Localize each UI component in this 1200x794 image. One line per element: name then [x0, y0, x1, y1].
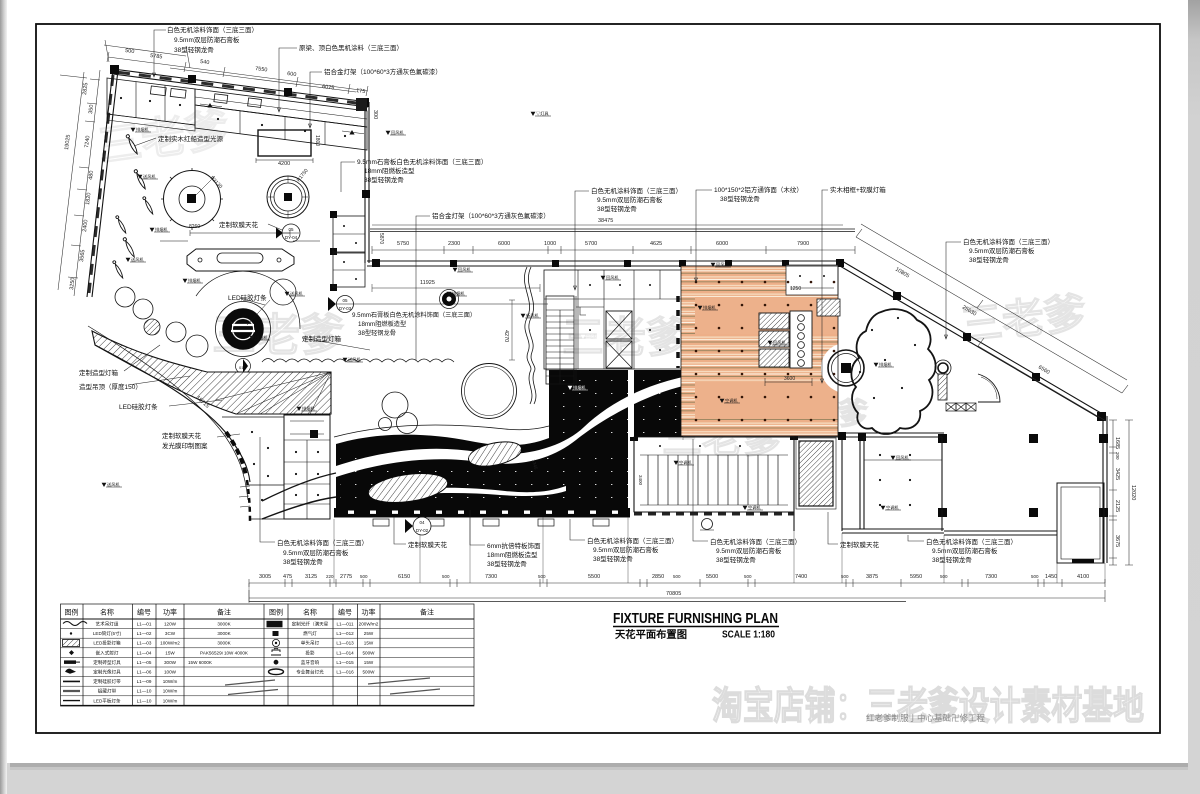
svg-text:排烟机: 排烟机	[255, 334, 268, 341]
svg-text:名称: 名称	[100, 608, 114, 617]
svg-text:嵌入式射灯: 嵌入式射灯	[96, 649, 119, 656]
svg-text:编号: 编号	[137, 608, 151, 617]
svg-text:220: 220	[326, 574, 334, 579]
svg-text:L1—05: L1—05	[137, 660, 152, 665]
svg-text:5500: 5500	[706, 574, 718, 580]
svg-text:38型轻钢龙骨: 38型轻钢龙骨	[969, 255, 1009, 264]
svg-text:LED硅胶灯条: LED硅胶灯条	[228, 293, 267, 302]
svg-text:1450: 1450	[1045, 574, 1057, 580]
svg-text:38型轻钢龙骨: 38型轻钢龙骨	[358, 329, 396, 337]
svg-text:定制光像灯具: 定制光像灯具	[93, 669, 121, 676]
svg-text:定制软膜天花: 定制软膜天花	[408, 540, 448, 549]
svg-text:3875: 3875	[866, 574, 878, 580]
svg-text:8260: 8260	[189, 224, 200, 230]
svg-text:4625: 4625	[650, 241, 662, 247]
svg-text:200: 200	[1115, 452, 1120, 460]
svg-text:15W: 15W	[364, 660, 374, 665]
svg-text:9.5mm双层防潮石膏板: 9.5mm双层防潮石膏板	[716, 546, 782, 555]
svg-text:500: 500	[125, 48, 135, 55]
svg-text:04: 04	[419, 520, 425, 525]
svg-text:2300: 2300	[448, 241, 460, 247]
svg-text:送风机: 送风机	[143, 173, 156, 180]
svg-text:38型轻钢龙骨: 38型轻钢龙骨	[932, 555, 972, 564]
svg-text:12020: 12020	[1130, 485, 1136, 500]
svg-text:7300: 7300	[485, 574, 497, 580]
svg-text:3005: 3005	[259, 574, 271, 580]
svg-text:500: 500	[360, 574, 368, 579]
svg-text:10W/m: 10W/m	[163, 689, 178, 694]
svg-text:500: 500	[1031, 574, 1039, 579]
svg-text:4100: 4100	[1077, 574, 1089, 580]
svg-text:回风机: 回风机	[716, 261, 729, 268]
svg-text:1800: 1800	[314, 135, 320, 146]
svg-text:4200: 4200	[278, 161, 290, 167]
svg-text:空调机: 空调机	[886, 504, 899, 511]
svg-text:L1—10: L1—10	[137, 698, 152, 703]
svg-text:L1—016: L1—016	[336, 670, 354, 675]
svg-text:LED硅胶灯条: LED硅胶灯条	[119, 402, 158, 411]
svg-text:3CW: 3CW	[165, 631, 176, 636]
svg-text:天花平面布置图: 天花平面布置图	[615, 628, 687, 641]
svg-text:15W: 15W	[165, 650, 175, 655]
svg-text:排烟机: 排烟机	[452, 290, 465, 297]
svg-text:回风机: 回风机	[586, 333, 599, 340]
svg-text:38型轻钢龙骨: 38型轻钢龙骨	[283, 557, 323, 566]
svg-text:500: 500	[940, 574, 948, 579]
svg-text:定制软膜天花: 定制软膜天花	[162, 431, 202, 440]
svg-text:7900: 7900	[797, 241, 809, 247]
svg-text:L1—013: L1—013	[336, 641, 354, 646]
svg-text:10W/m: 10W/m	[163, 679, 178, 684]
svg-text:排烟机: 排烟机	[703, 304, 716, 311]
svg-text:11925: 11925	[420, 280, 435, 286]
svg-text:定制实木红船造型光源: 定制实木红船造型光源	[158, 134, 224, 143]
svg-text:L1—03: L1—03	[137, 641, 152, 646]
svg-text:18mm阻燃板造型: 18mm阻燃板造型	[364, 166, 415, 175]
svg-text:白色无机涂料饰面（三底三面）: 白色无机涂料饰面（三底三面）	[277, 538, 368, 547]
svg-text:1250: 1250	[790, 286, 801, 292]
svg-text:DY-03: DY-03	[339, 306, 352, 311]
svg-text:LED筒灯(5寸): LED筒灯(5寸)	[93, 630, 122, 637]
svg-text:定制软膜天花: 定制软膜天花	[840, 540, 880, 549]
svg-text:L1—02: L1—02	[137, 631, 152, 636]
svg-text:送风机: 送风机	[348, 356, 361, 363]
svg-text:排烟机: 排烟机	[879, 361, 892, 368]
svg-text:白色无机涂料饰面（三底三面）: 白色无机涂料饰面（三底三面）	[926, 537, 1017, 546]
svg-text:38型轻钢龙骨: 38型轻钢龙骨	[487, 559, 527, 568]
svg-text:18mm阻燃板造型: 18mm阻燃板造型	[358, 320, 406, 328]
svg-text:5750: 5750	[397, 241, 409, 247]
svg-text:L1—10: L1—10	[137, 689, 152, 694]
svg-text:送风机: 送风机	[131, 256, 144, 263]
svg-text:L1—09: L1—09	[137, 679, 152, 684]
svg-text:38475: 38475	[598, 218, 613, 224]
svg-text:白色无机涂料饰面（三底三面）: 白色无机涂料饰面（三底三面）	[591, 186, 682, 195]
svg-text:备注: 备注	[420, 608, 434, 617]
svg-text:9.5mm双层防潮石膏板: 9.5mm双层防潮石膏板	[174, 35, 240, 44]
svg-text:38型轻钢龙骨: 38型轻钢龙骨	[716, 555, 756, 564]
svg-text:图例: 图例	[65, 608, 79, 617]
svg-text:白色无机涂料饰面（三底三面）: 白色无机涂料饰面（三底三面）	[167, 25, 258, 34]
svg-text:DY-04: DY-04	[285, 235, 298, 240]
svg-text:定制造型灯箱: 定制造型灯箱	[79, 368, 119, 377]
svg-text:120W: 120W	[164, 622, 177, 627]
svg-text:38型轻钢龙骨: 38型轻钢龙骨	[720, 194, 760, 203]
svg-text:38型轻钢龙骨: 38型轻钢龙骨	[364, 175, 404, 184]
svg-text:2850: 2850	[652, 574, 664, 580]
svg-text:600: 600	[287, 71, 297, 78]
svg-text:175: 175	[356, 88, 366, 95]
svg-text:15W 6000K: 15W 6000K	[188, 660, 213, 665]
svg-text:备注: 备注	[217, 608, 231, 617]
svg-text:10W/m: 10W/m	[163, 698, 178, 703]
svg-text:500: 500	[841, 574, 849, 579]
svg-text:单头吊灯: 单头吊灯	[301, 640, 320, 647]
svg-text:3675: 3675	[1114, 535, 1120, 547]
svg-text:1685: 1685	[1114, 437, 1120, 449]
svg-text:9.5mm双层防潮石膏板: 9.5mm双层防潮石膏板	[969, 246, 1035, 255]
svg-text:送风机: 送风机	[107, 481, 120, 488]
svg-text:白色无机涂料饰面（三底三面）: 白色无机涂料饰面（三底三面）	[587, 536, 678, 545]
svg-text:定制光纤（满天星: 定制光纤（满天星	[292, 621, 329, 628]
svg-text:500: 500	[744, 574, 752, 579]
svg-text:3400: 3400	[638, 475, 643, 486]
svg-text:540: 540	[200, 59, 210, 66]
svg-text:▽灯具: ▽灯具	[536, 110, 549, 117]
svg-text:6000: 6000	[498, 241, 510, 247]
svg-text:3425: 3425	[1114, 468, 1120, 480]
svg-text:造型吊顶（厚度150）: 造型吊顶（厚度150）	[79, 382, 142, 391]
svg-text:9.5mm双层防潮石膏板: 9.5mm双层防潮石膏板	[283, 548, 349, 557]
svg-text:空调机: 空调机	[725, 397, 738, 404]
svg-text:专业舞台灯光: 专业舞台灯光	[296, 669, 324, 676]
svg-text:三老爹: 三老爹	[562, 314, 688, 361]
svg-text:FIXTURE FURNISHING PLAN: FIXTURE FURNISHING PLAN	[613, 610, 778, 627]
svg-text:艺术吊灯组: 艺术吊灯组	[96, 621, 119, 628]
svg-text:5870: 5870	[378, 233, 384, 244]
svg-text:名称: 名称	[303, 608, 317, 617]
svg-text:L1—04: L1—04	[137, 650, 152, 655]
svg-text:PAK56529i 10W 4000K: PAK56529i 10W 4000K	[200, 650, 249, 655]
svg-text:9.5mm双层防潮石膏板: 9.5mm双层防潮石膏板	[932, 546, 998, 555]
svg-text:编号: 编号	[338, 608, 352, 617]
svg-text:6000: 6000	[716, 241, 728, 247]
svg-text:100W: 100W	[164, 670, 177, 675]
svg-text:500: 500	[442, 574, 450, 579]
svg-text:15W: 15W	[364, 641, 374, 646]
svg-text:排烟机: 排烟机	[573, 384, 586, 391]
svg-text:定制造型灯箱: 定制造型灯箱	[302, 334, 342, 343]
svg-text:DY-02: DY-02	[416, 528, 429, 533]
svg-text:新风机: 新风机	[526, 312, 539, 319]
svg-text:发光膜印制图案: 发光膜印制图案	[162, 441, 208, 450]
svg-text:回风机: 回风机	[391, 129, 404, 136]
svg-text:L1—015: L1—015	[336, 660, 354, 665]
svg-text:25W: 25W	[364, 631, 374, 636]
svg-text:05: 05	[342, 298, 348, 303]
svg-text:475: 475	[283, 574, 292, 580]
svg-text:6mm抗倍特板饰面: 6mm抗倍特板饰面	[487, 541, 541, 550]
svg-text:白色无机涂料饰面（三底三面）: 白色无机涂料饰面（三底三面）	[963, 237, 1054, 246]
svg-text:9.5mm双层防潮石膏板: 9.5mm双层防潮石膏板	[593, 545, 659, 554]
svg-text:7400: 7400	[795, 574, 807, 580]
svg-text:L1—06: L1—06	[137, 670, 152, 675]
svg-text:38型轻钢龙骨: 38型轻钢龙骨	[597, 204, 637, 213]
svg-text:500W: 500W	[362, 670, 375, 675]
svg-text:回风机: 回风机	[773, 339, 786, 346]
svg-text:铝合金灯架（100*60*3方通灰色氟碳漆）: 铝合金灯架（100*60*3方通灰色氟碳漆）	[432, 211, 550, 220]
svg-text:1000: 1000	[544, 241, 556, 247]
svg-text:3000K: 3000K	[217, 622, 231, 627]
svg-text:投影: 投影	[305, 649, 315, 656]
svg-text:原梁、顶白色黑机涂料（三底三面）: 原梁、顶白色黑机涂料（三底三面）	[299, 43, 403, 52]
svg-text:白色无机涂料饰面（三底三面）: 白色无机涂料饰面（三底三面）	[710, 537, 801, 546]
svg-text:排烟机: 排烟机	[136, 126, 149, 133]
svg-text:蓝牙音响: 蓝牙音响	[301, 659, 320, 666]
svg-text:回风机: 回风机	[606, 274, 619, 281]
svg-text:铝合金灯架（100*60*3方通灰色氟碳漆）: 铝合金灯架（100*60*3方通灰色氟碳漆）	[324, 67, 442, 76]
svg-text:排烟机: 排烟机	[155, 226, 168, 233]
svg-text:3125: 3125	[305, 574, 317, 580]
svg-text:排烟机: 排烟机	[302, 405, 315, 412]
svg-text:空调机: 空调机	[679, 459, 692, 466]
svg-text:100*150*2铝方通饰面（木纹）: 100*150*2铝方通饰面（木纹）	[714, 185, 803, 194]
svg-text:4270: 4270	[503, 330, 509, 342]
svg-text:01: 01	[239, 365, 244, 370]
svg-text:500: 500	[538, 574, 546, 579]
svg-text:空调机: 空调机	[748, 504, 761, 511]
svg-text:L1—012: L1—012	[336, 631, 354, 636]
svg-text:LED平板灯条: LED平板灯条	[93, 697, 121, 704]
svg-text:3000K: 3000K	[217, 631, 231, 636]
svg-text:9.5mm双层防潮石膏板: 9.5mm双层防潮石膏板	[597, 195, 663, 204]
svg-text:480: 480	[88, 170, 95, 180]
svg-text:18mm阻燃板造型: 18mm阻燃板造型	[487, 550, 538, 559]
svg-text:9.5mm石膏板白色无机涂料饰面（三底三面）: 9.5mm石膏板白色无机涂料饰面（三底三面）	[357, 157, 487, 166]
svg-text:38型轻钢龙骨: 38型轻钢龙骨	[593, 554, 633, 563]
svg-text:2775: 2775	[340, 574, 352, 580]
svg-text:7300: 7300	[985, 574, 997, 580]
svg-text:定制软膜天花: 定制软膜天花	[219, 220, 259, 229]
svg-text:功率: 功率	[163, 608, 177, 617]
svg-text:9.5mm石膏板白色无机涂料饰面（三底三面）: 9.5mm石膏板白色无机涂料饰面（三底三面）	[352, 311, 476, 319]
svg-text:铝藏灯带: 铝藏灯带	[98, 688, 117, 695]
svg-text:3000K: 3000K	[217, 641, 231, 646]
svg-text:图例: 图例	[269, 608, 283, 617]
svg-text:送风机: 送风机	[290, 290, 303, 297]
svg-text:定制砖型灯具: 定制砖型灯具	[93, 659, 121, 666]
svg-text:6150: 6150	[398, 574, 410, 580]
svg-text:500W: 500W	[362, 650, 375, 655]
svg-text:L1—011: L1—011	[336, 622, 353, 627]
svg-text:功率: 功率	[362, 608, 376, 617]
svg-text:送风机: 送风机	[458, 451, 471, 458]
svg-text:定制硅胶灯带: 定制硅胶灯带	[93, 678, 121, 685]
svg-text:燃气灯: 燃气灯	[303, 630, 317, 637]
svg-text:200W/m2: 200W/m2	[359, 622, 379, 627]
svg-text:38型轻钢龙骨: 38型轻钢龙骨	[174, 45, 214, 54]
svg-text:L1—01: L1—01	[137, 622, 152, 627]
svg-text:回风机: 回风机	[458, 266, 471, 273]
svg-text:500: 500	[673, 574, 681, 579]
svg-text:实木相框+软膜灯箱: 实木相框+软膜灯箱	[830, 185, 886, 194]
svg-text:100W/m2: 100W/m2	[160, 641, 180, 646]
svg-text:05: 05	[288, 227, 294, 232]
svg-text:300W: 300W	[164, 660, 177, 665]
svg-text:L1—014: L1—014	[336, 650, 354, 655]
svg-text:5950: 5950	[910, 574, 922, 580]
svg-text:LED投影灯箱: LED投影灯箱	[93, 640, 121, 647]
svg-text:5700: 5700	[585, 241, 597, 247]
svg-text:SCALE 1:180: SCALE 1:180	[722, 630, 775, 641]
svg-text:2125: 2125	[1114, 500, 1120, 512]
svg-text:回风机: 回风机	[896, 454, 909, 461]
svg-text:红老爹制服亅中心基础卍修工程: 红老爹制服亅中心基础卍修工程	[866, 713, 986, 723]
svg-text:排烟机: 排烟机	[188, 277, 201, 284]
svg-text:350: 350	[88, 104, 95, 114]
svg-text:70805: 70805	[666, 591, 681, 597]
svg-text:5500: 5500	[588, 574, 600, 580]
svg-text:300: 300	[372, 110, 378, 119]
svg-text:3600: 3600	[784, 376, 795, 382]
